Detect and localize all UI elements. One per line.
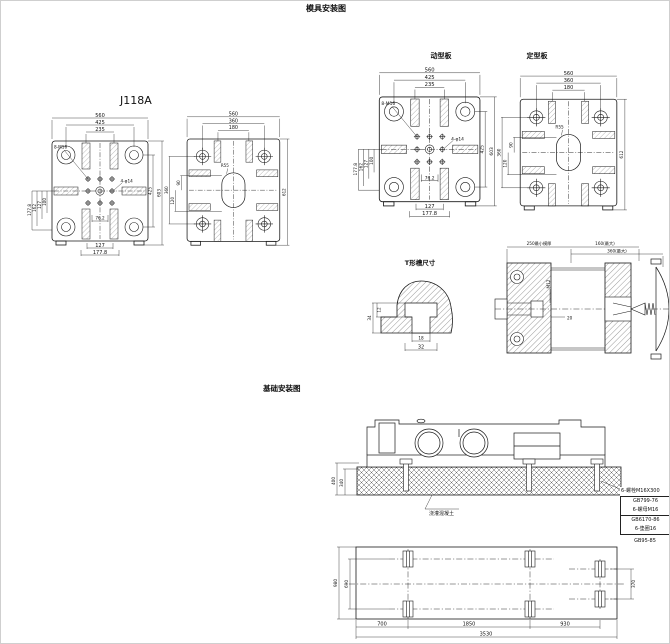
dim-612: 612 xyxy=(282,188,287,196)
dim-32: 32 xyxy=(418,345,424,351)
dim-90: 90 xyxy=(509,142,514,148)
dim-20: 20 xyxy=(567,316,573,321)
dim-360: 360 xyxy=(564,78,574,84)
moving-platen-front-view-right: 560 425 235 425 603 177.8 162 127 100 76… xyxy=(351,61,503,224)
dim-360: 360 xyxy=(229,118,238,124)
moving-platen-front-view-left: 560 425 235 425 603 177.8 162 127 100 76… xyxy=(25,107,170,262)
dim-76-2: 76.2 xyxy=(95,216,105,221)
dim-560: 560 xyxy=(95,113,105,119)
dim-1850: 1850 xyxy=(463,622,476,628)
dim-120: 120 xyxy=(170,197,175,205)
model-label: J118A xyxy=(120,94,152,107)
dim-100: 100 xyxy=(369,156,375,165)
foundation-plan-view: 980 690 370 700 1850 930 3530 xyxy=(329,534,669,644)
dim-12: 12 xyxy=(377,307,382,313)
dim-425-right: 425 xyxy=(480,145,486,154)
dim-425-right: 425 xyxy=(148,187,153,195)
bolt-leader-label: 6-螺栓M16X300 xyxy=(620,487,670,496)
dim-700: 700 xyxy=(377,622,387,628)
dim-235: 235 xyxy=(95,127,105,133)
dim-177-8-left: 177.8 xyxy=(353,163,359,176)
dim-560: 560 xyxy=(425,68,435,74)
dim-18: 18 xyxy=(418,336,424,341)
dim-180: 180 xyxy=(229,125,238,131)
callout-m12: M12 xyxy=(546,279,551,288)
foundation-side-view: 400 340 浇灌混凝土 xyxy=(329,405,669,535)
dim-560: 560 xyxy=(564,71,574,77)
table-row: GB6170-86 xyxy=(620,515,670,525)
dim-177-8-bottom: 177.8 xyxy=(422,211,437,217)
dim-400: 400 xyxy=(331,477,336,485)
dim-340: 340 xyxy=(339,479,344,487)
page-title: 模具安装图 xyxy=(281,3,371,14)
dim-235: 235 xyxy=(425,82,435,88)
dim-100: 100 xyxy=(42,198,47,206)
drawing-canvas: 模具安装图 J118A 动型板 定型板 T形槽尺寸 基础安装图 xyxy=(0,0,670,644)
centerlines xyxy=(349,549,625,619)
dim-690: 690 xyxy=(344,580,349,588)
dim-3530: 3530 xyxy=(480,632,493,638)
foundation-outline xyxy=(356,547,617,619)
moving-platen-label: 动型板 xyxy=(419,51,463,61)
foundation-title: 基础安装图 xyxy=(263,383,301,394)
dim-177-8-bottom: 177.8 xyxy=(93,250,107,256)
dim-360-left: 360 xyxy=(497,148,502,156)
callout-tap-holes: 8-M16 xyxy=(54,145,67,150)
table-row: 6-螺母M16 xyxy=(620,506,670,515)
callout-locating-holes: 4-φ14 xyxy=(451,136,464,142)
dim-76-2: 76.2 xyxy=(425,175,435,181)
foundation-block xyxy=(357,467,621,495)
t-slot-detail-view: 34 12 18 32 xyxy=(367,267,472,362)
dim-180: 180 xyxy=(564,85,574,91)
dim-162: 162 xyxy=(358,163,364,172)
callout-r55: R55 xyxy=(555,124,564,129)
sprue-nozzle xyxy=(605,297,655,321)
fixed-platen-front-view-right: 560 360 180 612 90 120 360 R55 xyxy=(493,65,639,221)
dim-127-left: 127 xyxy=(364,160,370,169)
table-row: GB799-76 xyxy=(620,496,670,506)
fixed-platen-label: 定型板 xyxy=(515,51,559,61)
dim-560: 560 xyxy=(229,112,238,118)
dim-34: 34 xyxy=(367,315,372,321)
dim-425: 425 xyxy=(95,120,105,126)
dim-360-max: 360(最大) xyxy=(607,248,627,255)
dim-127-bottom: 127 xyxy=(95,243,105,249)
tslot-title: T形槽尺寸 xyxy=(389,257,451,267)
concrete-note: 浇灌混凝土 xyxy=(429,510,454,517)
callout-locating-holes: 4-φ14 xyxy=(121,179,134,184)
dim-min-mold: 250最小模厚 xyxy=(527,240,552,247)
dim-930: 930 xyxy=(560,622,570,628)
dim-370: 370 xyxy=(631,580,636,588)
dim-425: 425 xyxy=(425,75,435,81)
callout-r55: R55 xyxy=(221,163,229,168)
platen-section-view: 250最小模厚 160(最大) 360(最大) M12 20 xyxy=(493,237,670,365)
dim-120: 120 xyxy=(503,159,508,167)
dim-90: 90 xyxy=(176,180,181,186)
callout-tap-holes: 8-M16 xyxy=(381,101,395,107)
dim-612: 612 xyxy=(619,150,624,158)
dim-160-max: 160(最大) xyxy=(595,240,615,247)
dim-360-left: 360 xyxy=(164,186,169,194)
small-dims xyxy=(550,289,565,317)
fixed-platen-front-view-left: 560 360 180 612 90 120 360 R55 xyxy=(161,106,301,256)
dim-127-bottom: 127 xyxy=(425,204,435,210)
dim-980: 980 xyxy=(333,579,338,587)
